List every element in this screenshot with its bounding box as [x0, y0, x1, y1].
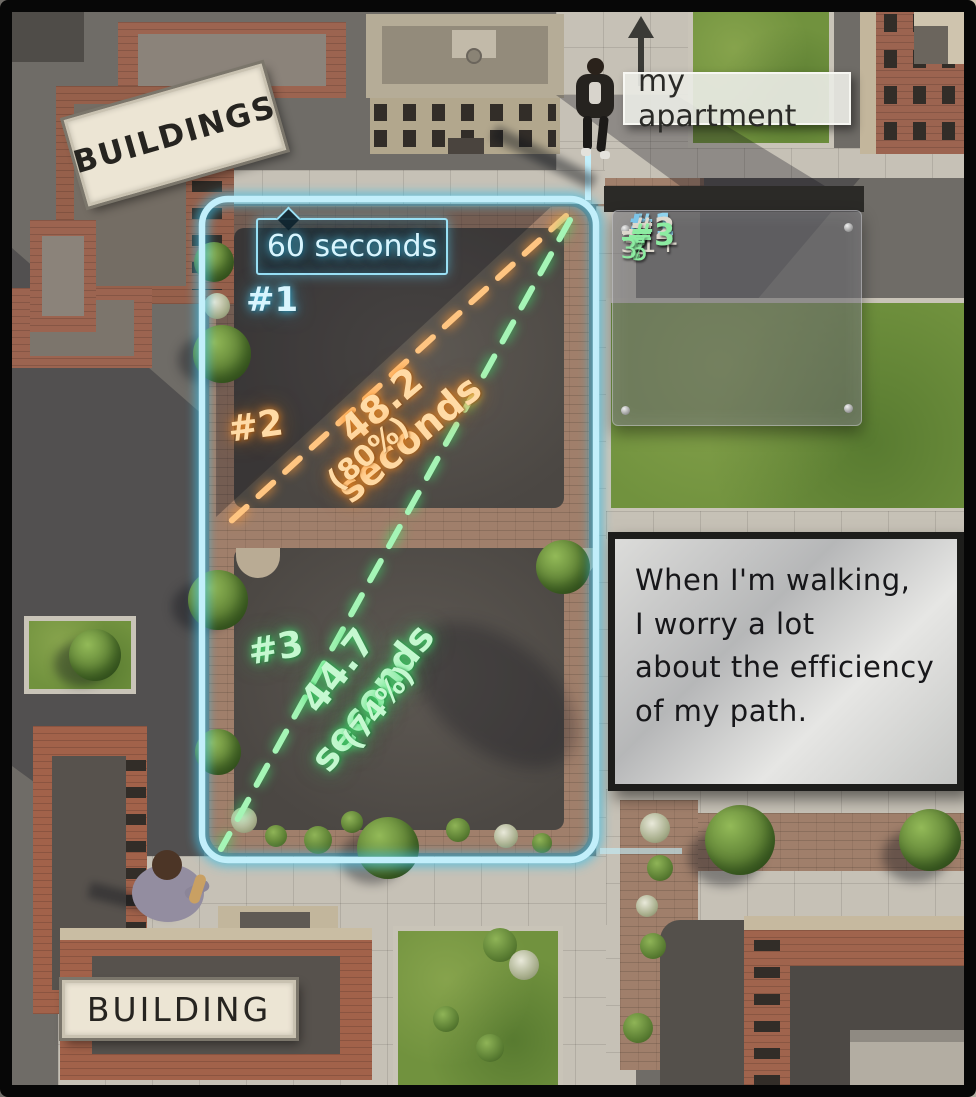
bush [640, 933, 666, 959]
flower-bush [636, 895, 658, 917]
building-bottomcenter-dark [660, 920, 752, 1097]
facade-door [448, 138, 484, 154]
note-line-3: about the efficiency [635, 646, 941, 690]
note-line-4: of my path. [635, 690, 941, 734]
formula-panel: #1 = t #2 = t(1+√2) 3 #3 = t√5 3 [612, 210, 862, 426]
pedestrian-shirt [589, 82, 601, 104]
arrow-head [628, 16, 654, 38]
bush [341, 811, 363, 833]
bush [304, 826, 332, 854]
route-2-id: #2 [225, 402, 285, 450]
tree [195, 729, 241, 775]
building-topright-win4 [884, 122, 970, 140]
pedestrian-leg [583, 116, 592, 150]
building-left-small-roof [42, 236, 84, 316]
building-sign: BUILDING [62, 980, 296, 1038]
corner-roof [12, 12, 84, 62]
note-line-2: I worry a lot [635, 603, 941, 647]
screw-icon [844, 404, 853, 413]
building-bottomright-windows [754, 940, 780, 1090]
pedestrian-leg [596, 116, 609, 153]
bush [446, 818, 470, 842]
bush [265, 825, 287, 847]
bush [433, 1006, 459, 1032]
aerial-scene: 60 seconds #1 #2 48.2 seconds (80%) #3 4… [0, 0, 976, 1097]
bush [532, 833, 552, 853]
flower-bush [494, 824, 518, 848]
tree [357, 817, 419, 879]
tree [705, 805, 775, 875]
flower-bush [509, 950, 539, 980]
note-panel: When I'm walking, I worry a lot about th… [608, 532, 964, 791]
screw-icon [844, 223, 853, 232]
building-topright-notch [914, 26, 948, 64]
mid-sidewalk-strip [215, 170, 605, 204]
screw-icon [621, 406, 630, 415]
pedestrian-head [587, 58, 604, 75]
apartment-label-text: my apartment [638, 64, 849, 134]
building-bottomright-parapet [744, 916, 976, 930]
tree [193, 325, 251, 383]
tree [536, 540, 590, 594]
building-annex [850, 1030, 976, 1097]
pedestrian-shoe [600, 151, 610, 159]
pedestrian-head [152, 850, 182, 880]
tree [188, 570, 248, 630]
building-topright-win3 [884, 86, 970, 104]
tree [899, 809, 961, 871]
building-sign-text: BUILDING [87, 990, 271, 1029]
route-1-id: #1 [246, 280, 298, 320]
pedestrian-start [572, 58, 620, 160]
bush [476, 1034, 504, 1062]
note-line-1: When I'm walking, [635, 559, 941, 603]
route-1-time-badge: 60 seconds [256, 218, 448, 275]
route-1-time: 60 seconds [267, 229, 437, 264]
flower-bush [204, 293, 230, 319]
tree [69, 629, 121, 681]
formula-3-denominator: 3 [620, 235, 637, 264]
apartment-label: my apartment [623, 72, 851, 125]
bottom-grass [393, 926, 563, 1097]
pedestrian-end [122, 838, 222, 938]
rooftop-fan-icon [466, 48, 482, 64]
tree [194, 242, 234, 282]
pedestrian-shoe [581, 148, 591, 156]
building-topright-pilaster [860, 0, 876, 154]
bush [647, 855, 673, 881]
flower-bush [231, 807, 257, 833]
flower-bush [640, 813, 670, 843]
facade-windows-row1 [374, 104, 556, 121]
bush [623, 1013, 653, 1043]
